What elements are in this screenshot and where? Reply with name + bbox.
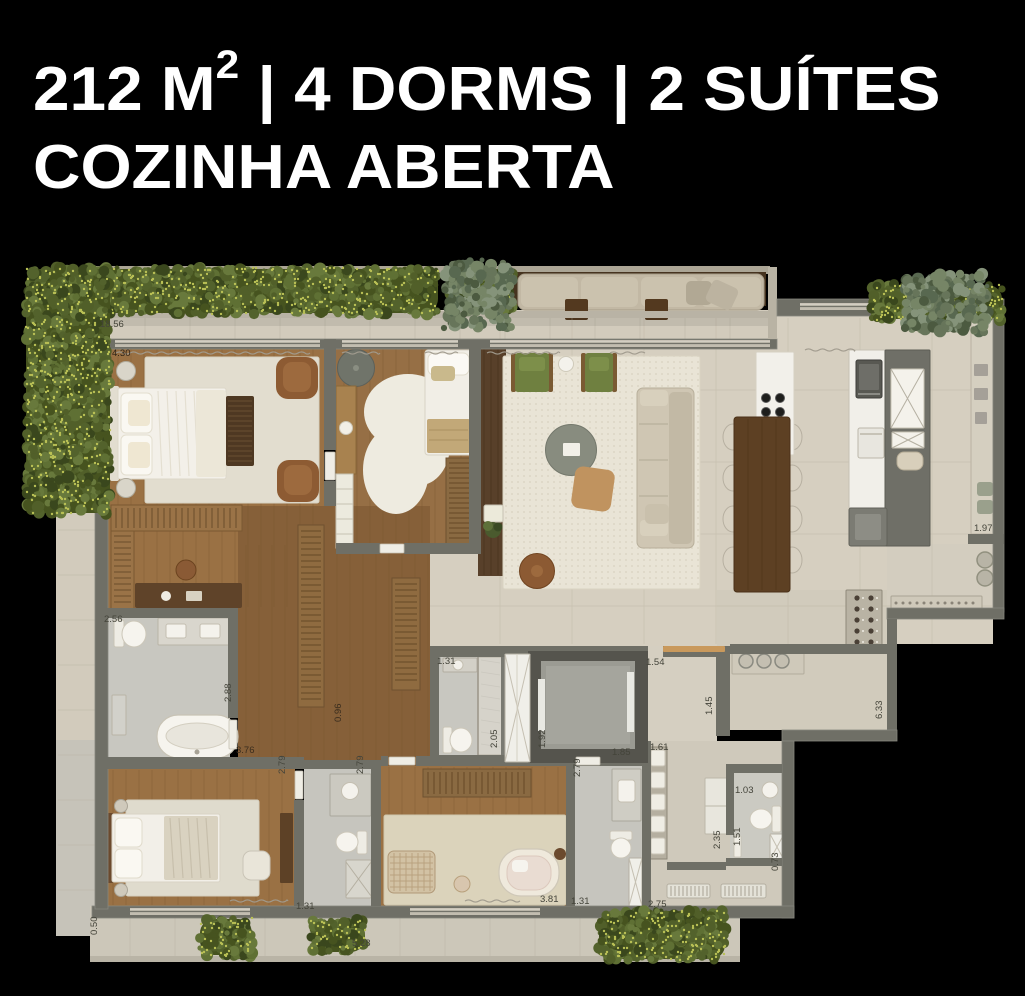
svg-text:1.31: 1.31 xyxy=(571,896,590,907)
svg-text:1.45: 1.45 xyxy=(704,697,715,716)
svg-text:0.50: 0.50 xyxy=(89,917,100,936)
svg-text:0.96: 0.96 xyxy=(333,704,344,723)
svg-text:4.30: 4.30 xyxy=(112,348,131,359)
svg-text:2.79: 2.79 xyxy=(572,759,583,778)
svg-text:2.79: 2.79 xyxy=(355,756,366,775)
svg-text:18.56: 18.56 xyxy=(100,319,124,330)
svg-text:1.54: 1.54 xyxy=(646,657,665,668)
svg-text:6.33: 6.33 xyxy=(874,701,885,720)
svg-text:3.76: 3.76 xyxy=(236,745,255,756)
svg-text:3.81: 3.81 xyxy=(540,894,559,905)
svg-text:1.97: 1.97 xyxy=(974,523,993,534)
svg-text:0.73: 0.73 xyxy=(770,853,781,872)
svg-text:1.85: 1.85 xyxy=(612,747,631,758)
svg-text:5.28: 5.28 xyxy=(352,938,371,949)
svg-text:2.88: 2.88 xyxy=(223,684,234,703)
svg-text:1.51: 1.51 xyxy=(732,828,743,847)
svg-text:1.03: 1.03 xyxy=(735,785,754,796)
svg-text:2.75: 2.75 xyxy=(648,899,667,910)
svg-text:212 M2 | 4 DORMS | 2 SUÍTES: 212 M2 | 4 DORMS | 2 SUÍTES xyxy=(33,42,940,124)
svg-text:2.05: 2.05 xyxy=(489,730,500,749)
svg-text:1.31: 1.31 xyxy=(437,656,456,667)
svg-text:2.35: 2.35 xyxy=(712,831,723,850)
svg-text:COZINHA ABERTA: COZINHA ABERTA xyxy=(33,132,615,202)
svg-text:2.56: 2.56 xyxy=(104,614,123,625)
svg-text:1.92: 1.92 xyxy=(537,730,548,749)
svg-text:1.61: 1.61 xyxy=(650,742,669,753)
svg-text:2.79: 2.79 xyxy=(277,756,288,775)
svg-text:1.31: 1.31 xyxy=(296,901,315,912)
